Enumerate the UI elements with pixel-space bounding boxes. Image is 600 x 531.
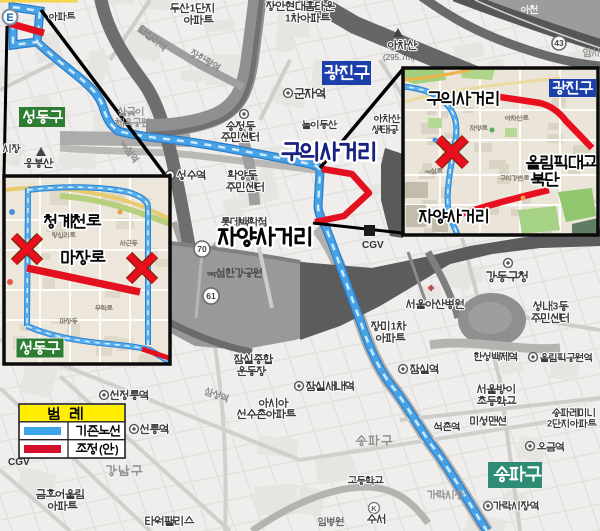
svg-text:2: 2 — [547, 419, 552, 429]
svg-text:1: 1 — [190, 4, 196, 15]
svg-text:): ) — [115, 444, 119, 456]
svg-text:3: 3 — [553, 302, 559, 313]
svg-text:(: ( — [99, 444, 103, 456]
svg-text:70: 70 — [197, 244, 207, 254]
svg-text:61: 61 — [206, 291, 216, 301]
svg-text:1: 1 — [391, 322, 397, 333]
svg-text:K: K — [371, 504, 377, 513]
svg-text:43: 43 — [554, 38, 564, 48]
svg-text:CGV: CGV — [362, 240, 384, 251]
svg-text:1: 1 — [285, 14, 291, 25]
svg-text:E: E — [6, 12, 13, 24]
svg-text:(295.7m): (295.7m) — [383, 53, 415, 62]
